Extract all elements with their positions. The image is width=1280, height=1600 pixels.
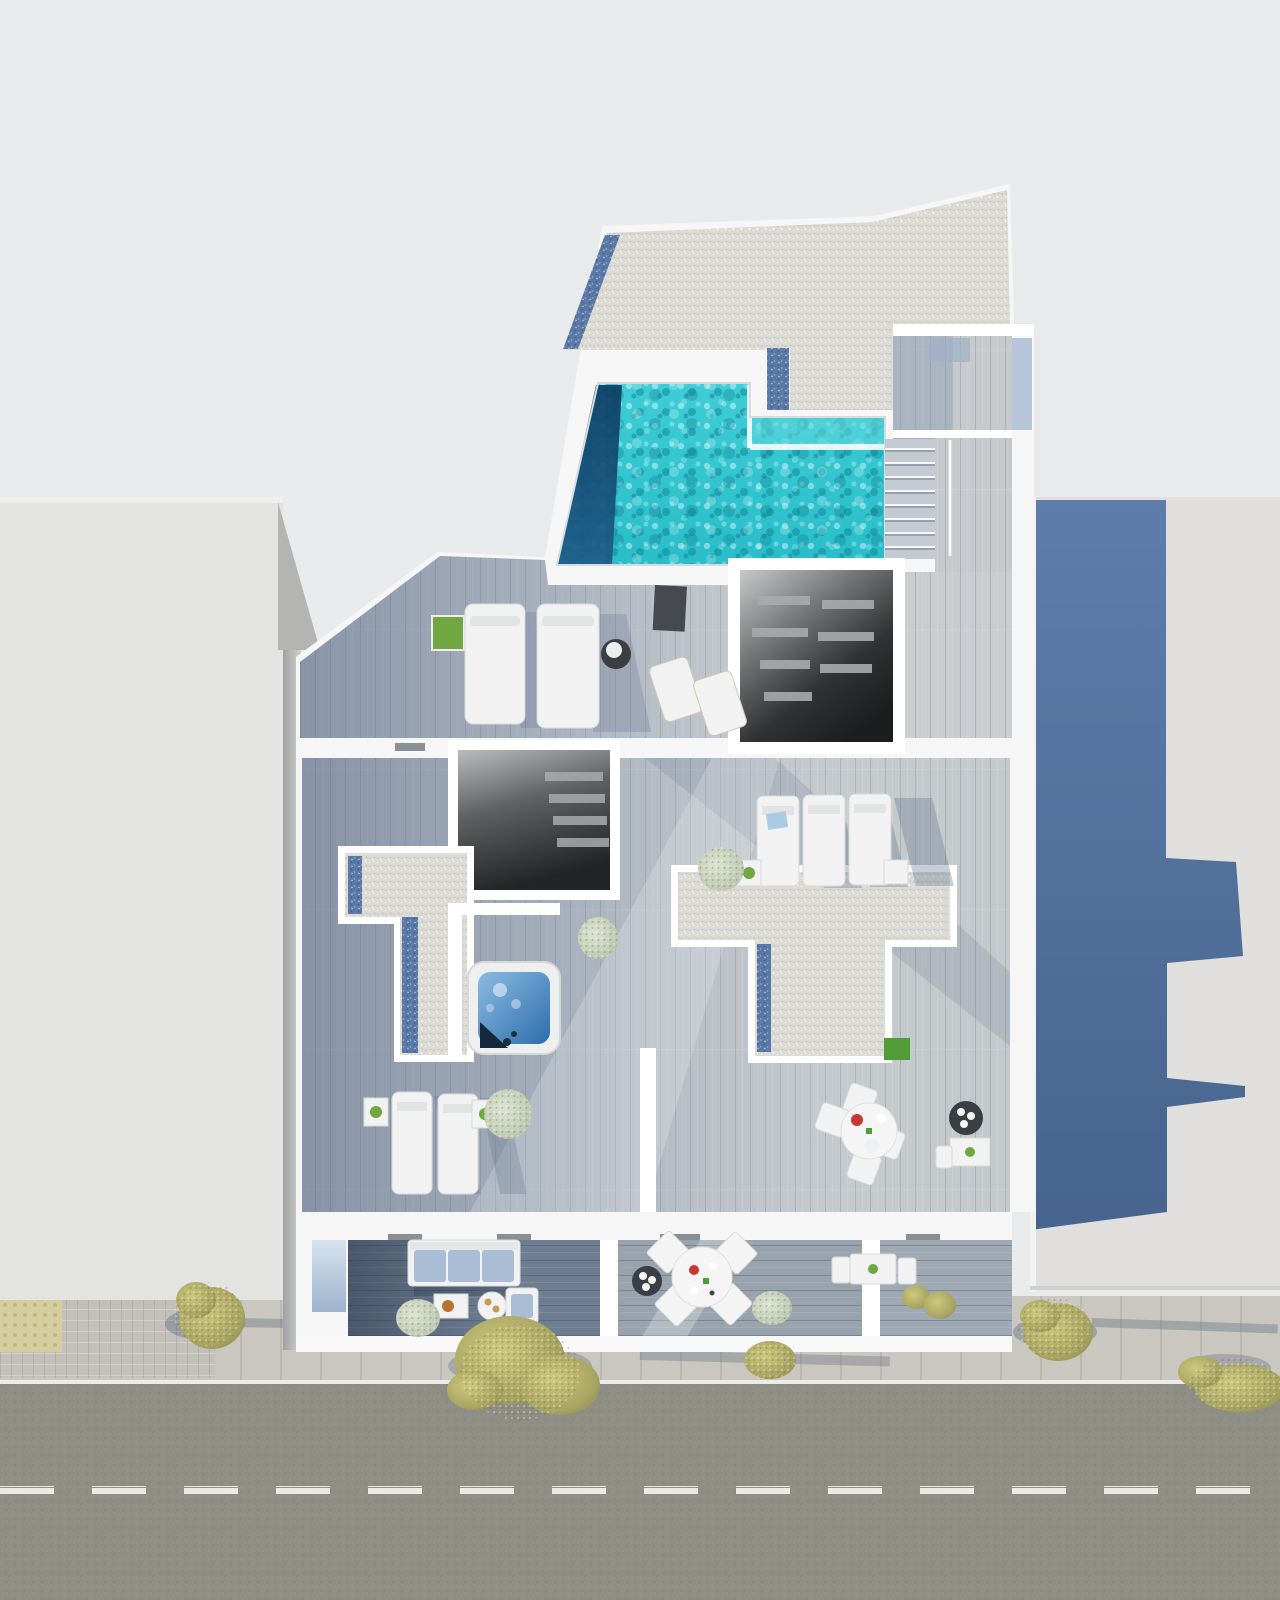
door-threshold xyxy=(497,1234,531,1240)
slat xyxy=(758,596,810,605)
cup xyxy=(690,1287,698,1295)
potted-plant xyxy=(743,867,755,879)
nook-wall xyxy=(448,903,462,1055)
white-flowers xyxy=(639,1272,647,1280)
lounger-pillow xyxy=(443,1104,473,1113)
pool-shallow-shelf xyxy=(750,417,885,448)
chair xyxy=(832,1257,850,1283)
slat xyxy=(818,632,874,641)
balcony-divider-wall xyxy=(600,1240,618,1352)
lounger-pillow xyxy=(470,616,520,626)
grass-patch xyxy=(884,1038,910,1060)
pool-bench-edge xyxy=(750,444,885,450)
dark-round-planter xyxy=(632,1266,662,1296)
chair xyxy=(898,1258,916,1284)
jacuzzi-seat-knob xyxy=(511,1031,517,1037)
green-table-item xyxy=(703,1278,709,1284)
cup xyxy=(876,1113,886,1123)
corridor-planks-lower xyxy=(935,437,1012,572)
pastry xyxy=(493,1306,500,1313)
potted-plant xyxy=(370,1106,382,1118)
red-table-item xyxy=(689,1265,699,1275)
roof-opening-stairwell xyxy=(728,558,905,754)
lounger-pillow xyxy=(808,805,840,814)
nook-wall xyxy=(448,903,560,915)
gravel-blue-strip xyxy=(757,944,771,1052)
street xyxy=(0,1376,1280,1600)
gravel-blue-strip xyxy=(348,856,362,914)
shrub-texture xyxy=(578,917,618,959)
door-threshold xyxy=(388,1234,422,1240)
cup xyxy=(709,1262,717,1270)
opening-void xyxy=(740,570,893,742)
jacuzzi-foam xyxy=(486,1004,494,1012)
sofa-cushion xyxy=(448,1250,480,1282)
dividing-wall xyxy=(640,1048,656,1212)
right-building-facade-edge xyxy=(1030,1286,1280,1290)
slat xyxy=(760,660,810,669)
sofa-cushion xyxy=(482,1250,514,1282)
planter-box xyxy=(432,616,464,650)
shrub-texture xyxy=(396,1299,440,1337)
white-flowers xyxy=(957,1108,965,1116)
gravel-blue-strip xyxy=(402,917,418,1053)
dark-round-planter xyxy=(949,1101,983,1135)
table-decor xyxy=(442,1300,454,1312)
right-balcony-planks xyxy=(880,1240,1012,1340)
right-neighbour-building xyxy=(1030,497,1280,1292)
shrub xyxy=(924,1291,956,1319)
lounger-pillow xyxy=(854,804,886,813)
green-table-item xyxy=(866,1128,872,1134)
corridor-wall-shadow xyxy=(930,338,970,362)
left-building-roof xyxy=(0,500,283,1300)
render-canvas xyxy=(0,0,1280,1600)
red-table-item xyxy=(851,1114,863,1126)
stair-treads xyxy=(885,439,935,559)
gravel-blue-drain-strip xyxy=(767,348,789,410)
round-tray-table xyxy=(478,1292,506,1320)
towel-roll xyxy=(606,642,622,658)
stair-threshold xyxy=(893,430,1012,438)
parapet-inner-face xyxy=(1012,338,1032,430)
white-flowers xyxy=(960,1120,968,1128)
slat xyxy=(549,794,605,803)
glass-panel xyxy=(312,1240,346,1312)
potted-plant xyxy=(965,1147,975,1157)
white-flowers xyxy=(642,1283,650,1291)
left-building-parapet-edge xyxy=(0,497,283,503)
white-flowers xyxy=(967,1112,975,1120)
stair-corridor xyxy=(885,324,1034,572)
jacuzzi-seat-knob xyxy=(503,1038,511,1046)
sofa-backrest xyxy=(410,1242,518,1250)
chair xyxy=(936,1146,952,1168)
armchair-cushion xyxy=(511,1294,533,1318)
slat xyxy=(752,628,808,637)
slat xyxy=(764,692,812,701)
sofa-cushion xyxy=(414,1250,446,1282)
small-table xyxy=(884,860,908,884)
table-decor xyxy=(710,1291,715,1296)
slat xyxy=(557,838,609,847)
jacuzzi-foam xyxy=(511,999,521,1009)
tree xyxy=(744,1341,796,1379)
lounger-pillow xyxy=(397,1102,427,1111)
slat xyxy=(820,664,872,673)
shrub-texture xyxy=(484,1089,532,1139)
plate xyxy=(865,1139,879,1153)
street-center-dashed-line xyxy=(0,1486,1280,1494)
door-threshold xyxy=(395,743,425,751)
lounger-pillow xyxy=(542,616,594,626)
scene-svg xyxy=(0,0,1280,1600)
slat xyxy=(553,816,607,825)
pastry xyxy=(485,1299,492,1306)
jacuzzi-foam xyxy=(493,983,507,997)
shrub-texture xyxy=(752,1291,792,1325)
corridor-parapet-band xyxy=(893,324,1034,336)
shower-mat xyxy=(653,585,687,632)
left-neighbour-building xyxy=(0,497,320,1350)
tactile-paving-pad xyxy=(0,1300,62,1352)
white-flowers xyxy=(648,1276,656,1284)
balcony-front-parapet xyxy=(296,1336,1012,1352)
slat xyxy=(545,772,603,781)
shrub-texture xyxy=(698,847,744,891)
door-threshold xyxy=(906,1234,940,1240)
blue-towel xyxy=(766,811,788,830)
potted-plant xyxy=(868,1264,878,1274)
slat xyxy=(822,600,874,609)
round-dining-table xyxy=(672,1247,732,1307)
